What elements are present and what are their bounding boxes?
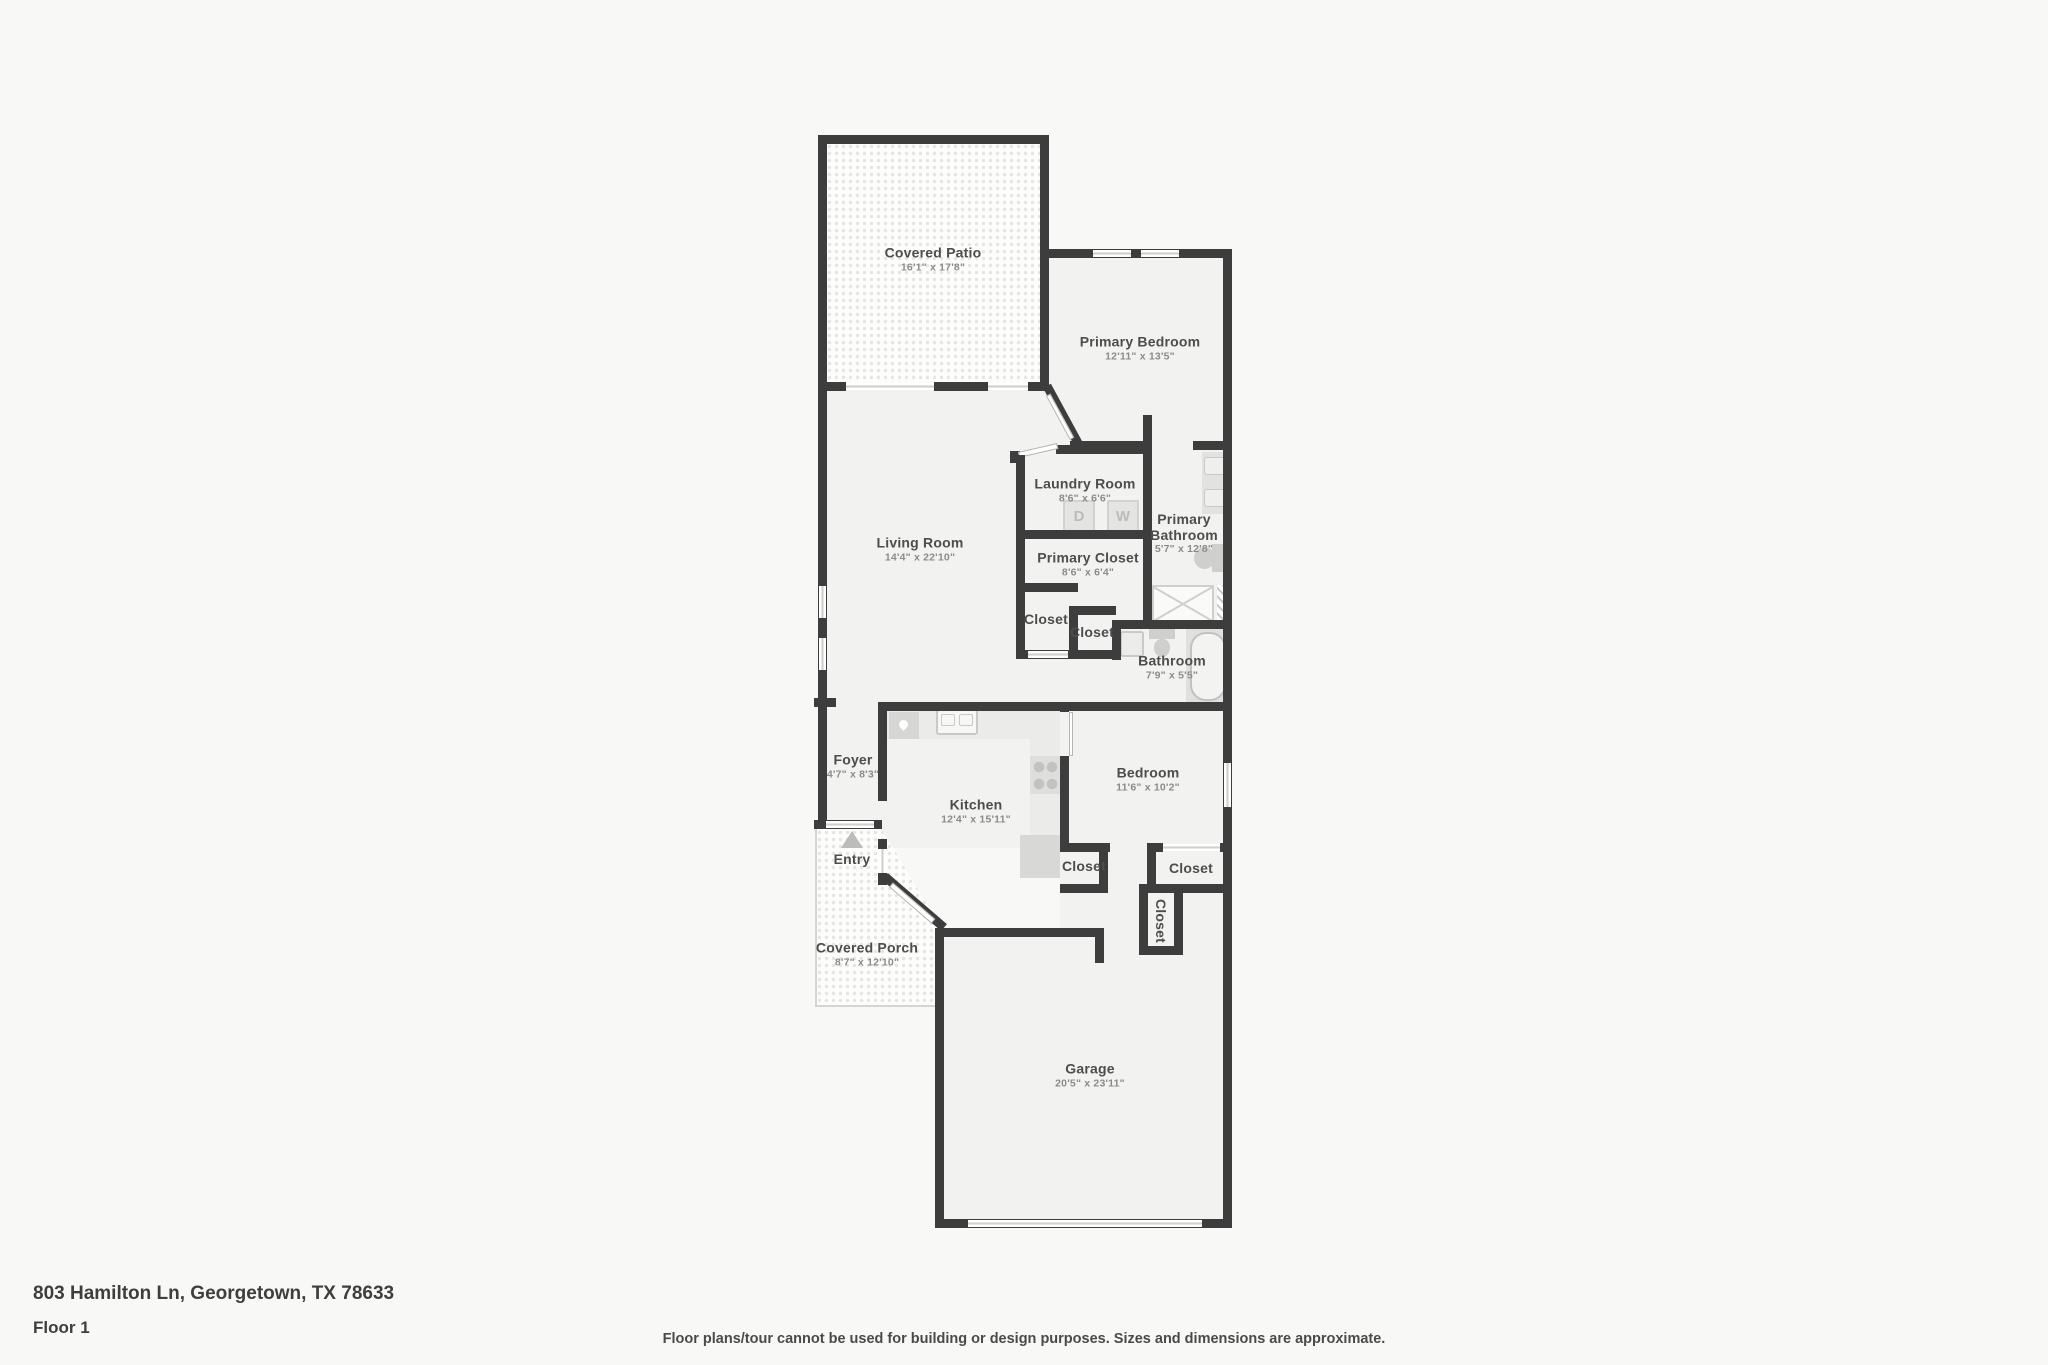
room-label-bedroom: Bedroom 11'6" x 10'2": [1116, 765, 1180, 794]
shower-icon: [1152, 585, 1214, 623]
room-label-primary-bathroom: Primary Bathroom 5'7" x 12'8": [1134, 512, 1234, 556]
wall: [1139, 946, 1183, 955]
room-label-garage: Garage 20'5" x 23'11": [1055, 1061, 1125, 1090]
stove-icon: [1030, 756, 1060, 794]
room-name: Foyer: [827, 752, 879, 768]
entry-arrow-icon: [841, 831, 863, 848]
room-dims: 20'5" x 23'11": [1055, 1078, 1125, 1090]
room-label-closet-b: Closet: [1070, 624, 1114, 640]
room-label-bathroom: Bathroom 7'9" x 5'5": [1138, 653, 1206, 682]
wall: [1040, 249, 1232, 258]
primary-sink-1-icon: [1204, 457, 1225, 475]
room-name: Laundry Room: [1034, 476, 1135, 492]
room-name: Covered Patio: [885, 245, 982, 261]
room-dims: 5'7" x 12'8": [1134, 544, 1234, 556]
room-name: Bedroom: [1116, 765, 1180, 781]
entry-window: [826, 821, 874, 828]
wall: [1147, 884, 1232, 893]
room-name: Closet: [1153, 899, 1169, 943]
wall: [935, 928, 1104, 937]
wall: [1016, 455, 1025, 659]
room-name: Covered Porch: [816, 940, 918, 956]
wall: [1220, 843, 1232, 852]
wall: [1193, 441, 1232, 450]
wall: [1112, 620, 1232, 629]
wall: [814, 698, 836, 707]
primary-sink-2-icon: [1204, 489, 1225, 507]
room-name: Garage: [1055, 1061, 1125, 1077]
room-dims: 4'7" x 8'3": [827, 769, 879, 781]
wall: [878, 702, 887, 801]
room-label-primary-bedroom: Primary Bedroom 12'11" x 13'5": [1080, 334, 1200, 363]
room-label-closet-vertical: Closet: [1153, 899, 1169, 943]
closet-a-opening: [1028, 651, 1068, 658]
room-dims: 16'1" x 17'8": [885, 262, 982, 274]
dryer-icon: D: [1063, 500, 1095, 533]
bathroom-toilet-tank-icon: [1149, 629, 1175, 639]
room-label-kitchen: Kitchen 12'4" x 15'11": [941, 797, 1011, 826]
wall: [1040, 135, 1049, 391]
wall: [1060, 702, 1069, 712]
room-name: Closet: [1024, 611, 1068, 627]
room-name: Primary Closet: [1037, 550, 1139, 566]
bedroom-window: [1224, 763, 1231, 807]
sink-basin-right: [959, 714, 973, 726]
sink-basin-left: [941, 714, 955, 726]
wall: [1060, 756, 1069, 852]
address-text: 803 Hamilton Ln, Georgetown, TX 78633: [33, 1283, 394, 1305]
room-name: Primary Bedroom: [1080, 334, 1200, 350]
room-label-laundry-room: Laundry Room 8'6" x 6'6": [1034, 476, 1135, 505]
room-label-living-room: Living Room 14'4" x 22'10": [877, 535, 964, 564]
room-name: Living Room: [877, 535, 964, 551]
room-name: Kitchen: [941, 797, 1011, 813]
wall: [1139, 884, 1148, 955]
patio-window: [846, 383, 934, 390]
room-label-covered-patio: Covered Patio 16'1" x 17'8": [885, 245, 982, 274]
bedroom-closet-opening: [1163, 844, 1220, 851]
wall: [878, 702, 1069, 711]
room-name: Primary Bathroom: [1134, 512, 1234, 543]
wall: [1143, 415, 1152, 593]
wall: [818, 135, 827, 391]
wall: [935, 928, 944, 1228]
room-dims: 7'9" x 5'5": [1138, 670, 1206, 682]
wall: [1095, 937, 1104, 963]
floor-plan-page: D W: [0, 0, 2048, 1365]
kitchen-side-window: [879, 849, 886, 873]
room-label-closet-kitchen: Closet: [1062, 858, 1106, 874]
primary-bedroom-window-2: [1141, 250, 1179, 257]
wall: [878, 839, 887, 849]
wall: [818, 135, 1049, 144]
wall: [1223, 249, 1232, 1228]
room-label-primary-closet: Primary Closet 8'6" x 6'4": [1037, 550, 1139, 579]
living-room-window-2: [819, 638, 826, 670]
garage-door: [968, 1220, 1202, 1227]
wall: [1016, 530, 1152, 539]
wall: [1056, 445, 1152, 454]
room-name: Closet: [1070, 624, 1114, 640]
room-label-foyer: Foyer 4'7" x 8'3": [827, 752, 879, 781]
porch-edge-bottom: [815, 1005, 943, 1007]
room-name: Bathroom: [1138, 653, 1206, 669]
wall: [1069, 650, 1116, 659]
room-name: Closet: [1169, 860, 1213, 876]
wall: [1060, 884, 1108, 893]
room-dims: 8'6" x 6'4": [1037, 567, 1139, 579]
disclaimer-text: Floor plans/tour cannot be used for buil…: [0, 1331, 2048, 1347]
room-dims: 14'4" x 22'10": [877, 552, 964, 564]
room-name: Closet: [1062, 858, 1106, 874]
room-name: Entry: [834, 851, 871, 867]
fridge-icon: [1020, 835, 1060, 878]
wall: [1069, 702, 1232, 711]
living-room-window-1: [819, 586, 826, 618]
bedroom2-door-leaf: [1069, 712, 1073, 756]
room-label-entry: Entry: [834, 851, 871, 867]
room-dims: 12'4" x 15'11": [941, 814, 1011, 826]
room-dims: 8'7" x 12'10": [816, 957, 918, 969]
room-label-closet-bedroom: Closet: [1169, 860, 1213, 876]
wall: [934, 382, 988, 391]
room-label-covered-porch: Covered Porch 8'7" x 12'10": [816, 940, 918, 969]
room-dims: 8'6" x 6'6": [1034, 493, 1135, 505]
room-label-closet-a: Closet: [1024, 611, 1068, 627]
porch-edge-left: [815, 829, 817, 1007]
wall: [1016, 583, 1078, 592]
room-dims: 11'6" x 10'2": [1116, 782, 1180, 794]
primary-bedroom-window-1: [1093, 250, 1131, 257]
patio-slider-opening: [988, 383, 1028, 390]
room-dims: 12'11" x 13'5": [1080, 351, 1200, 363]
